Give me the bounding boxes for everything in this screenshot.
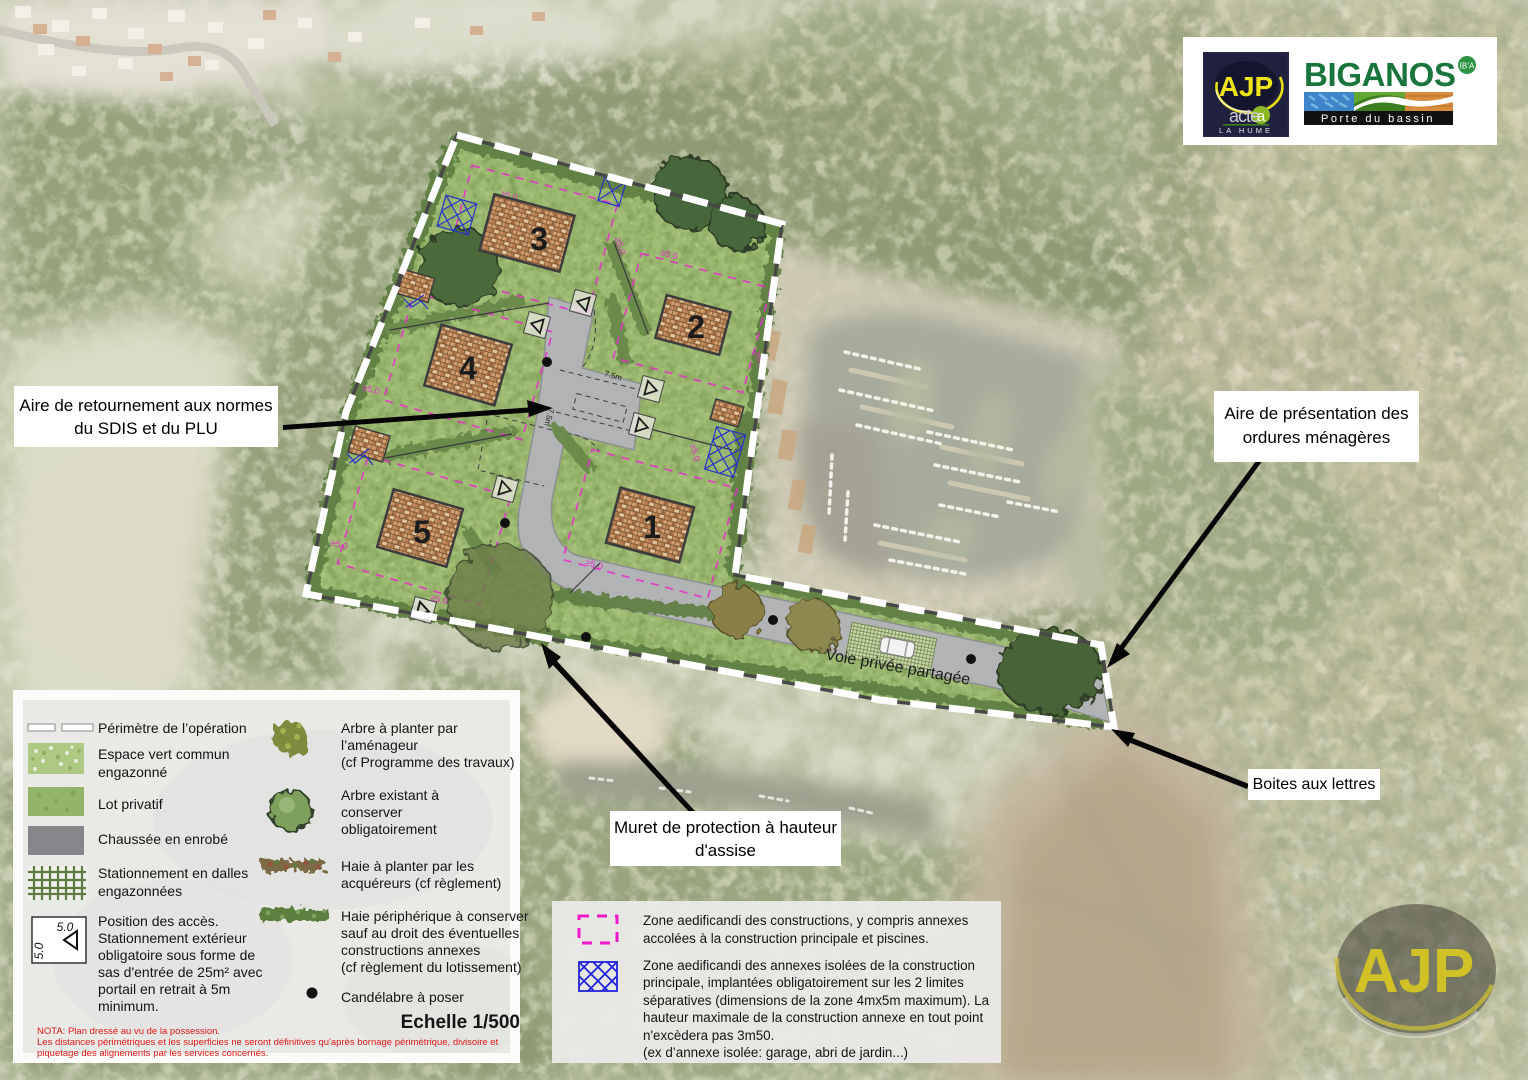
svg-text:acte: acte [1229, 106, 1260, 126]
svg-text:a: a [1257, 108, 1266, 125]
svg-text:2: 2 [687, 309, 705, 345]
svg-text:5.0: 5.0 [57, 920, 74, 934]
svg-text:LA HUME: LA HUME [1219, 126, 1273, 135]
svg-text:Porte du bassin: Porte du bassin [1321, 113, 1435, 125]
svg-text:AJP: AJP [1219, 71, 1273, 102]
svg-text:5.0: 5.0 [32, 942, 46, 959]
svg-text:AJP: AJP [1354, 937, 1475, 1006]
svg-text:3: 3 [530, 221, 548, 257]
svg-text:1: 1 [643, 509, 661, 545]
svg-text:4: 4 [459, 350, 477, 386]
svg-text:BIGANOS: BIGANOS [1304, 56, 1456, 93]
svg-text:5: 5 [413, 514, 431, 550]
svg-text:IB’A: IB’A [1460, 62, 1475, 71]
